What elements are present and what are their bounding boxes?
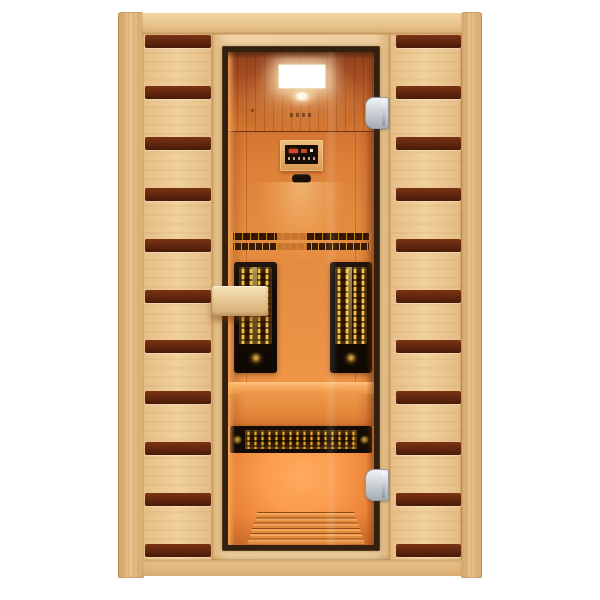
- glass-reflection: [324, 52, 338, 545]
- accent-stripe: [396, 188, 461, 201]
- backrest-slat: [231, 233, 371, 240]
- door-handle: [212, 286, 268, 316]
- accent-stripe: [396, 442, 461, 455]
- infrared-heater-left: [234, 262, 277, 373]
- left-wall-panel: [143, 34, 212, 560]
- accent-stripe: [396, 493, 461, 506]
- control-panel: [280, 140, 323, 171]
- ceiling-spot-light: [293, 92, 311, 101]
- control-panel-screen: [285, 145, 318, 164]
- sauna-product-image: [0, 0, 600, 600]
- cabin-left-corner-post: [118, 12, 144, 578]
- control-buttons: [288, 157, 315, 160]
- accent-stripe: [145, 391, 211, 404]
- accent-stripe: [396, 544, 461, 557]
- cabin-bottom-rail: [142, 559, 462, 576]
- door-hinge-top: [365, 97, 389, 129]
- backrest-slat: [231, 243, 371, 250]
- accent-stripe: [145, 340, 211, 353]
- timer-readout: [301, 149, 307, 153]
- accent-stripe: [396, 391, 461, 404]
- accent-stripe: [396, 290, 461, 303]
- accent-stripe: [145, 290, 211, 303]
- ceiling-vent: [290, 113, 311, 117]
- interior-floor: [228, 453, 374, 545]
- accent-stripe: [145, 239, 211, 252]
- accent-stripe: [145, 493, 211, 506]
- heater-logo-badge: [346, 353, 357, 364]
- floor-grate: [247, 512, 365, 544]
- heater-logo-badge: [250, 353, 261, 364]
- accent-stripe: [396, 137, 461, 150]
- cabin-top-rail: [142, 13, 462, 35]
- temperature-readout: [289, 149, 298, 153]
- right-wall-panel: [390, 34, 461, 560]
- under-bench-heater: [230, 426, 372, 453]
- heater-element: [245, 430, 357, 449]
- accent-stripe: [145, 86, 211, 99]
- heater-element: [335, 267, 367, 344]
- accent-stripe: [145, 188, 211, 201]
- accent-stripe: [145, 442, 211, 455]
- cabin-right-corner-post: [461, 12, 482, 578]
- bench-seat-edge: [228, 382, 374, 394]
- door-hinge-bottom: [365, 469, 389, 501]
- glass-top-shadow: [228, 52, 374, 59]
- accent-stripe: [145, 544, 211, 557]
- accent-stripe: [145, 137, 211, 150]
- accent-stripe: [396, 239, 461, 252]
- ceiling-light-panel: [278, 64, 326, 89]
- status-led: [310, 149, 313, 152]
- accent-stripe: [145, 35, 211, 48]
- interior-ceiling: [228, 52, 374, 132]
- accent-stripe: [396, 35, 461, 48]
- accent-stripe: [396, 86, 461, 99]
- accent-stripe: [396, 340, 461, 353]
- bench-front: [228, 394, 374, 426]
- ceiling-screw: [251, 109, 254, 112]
